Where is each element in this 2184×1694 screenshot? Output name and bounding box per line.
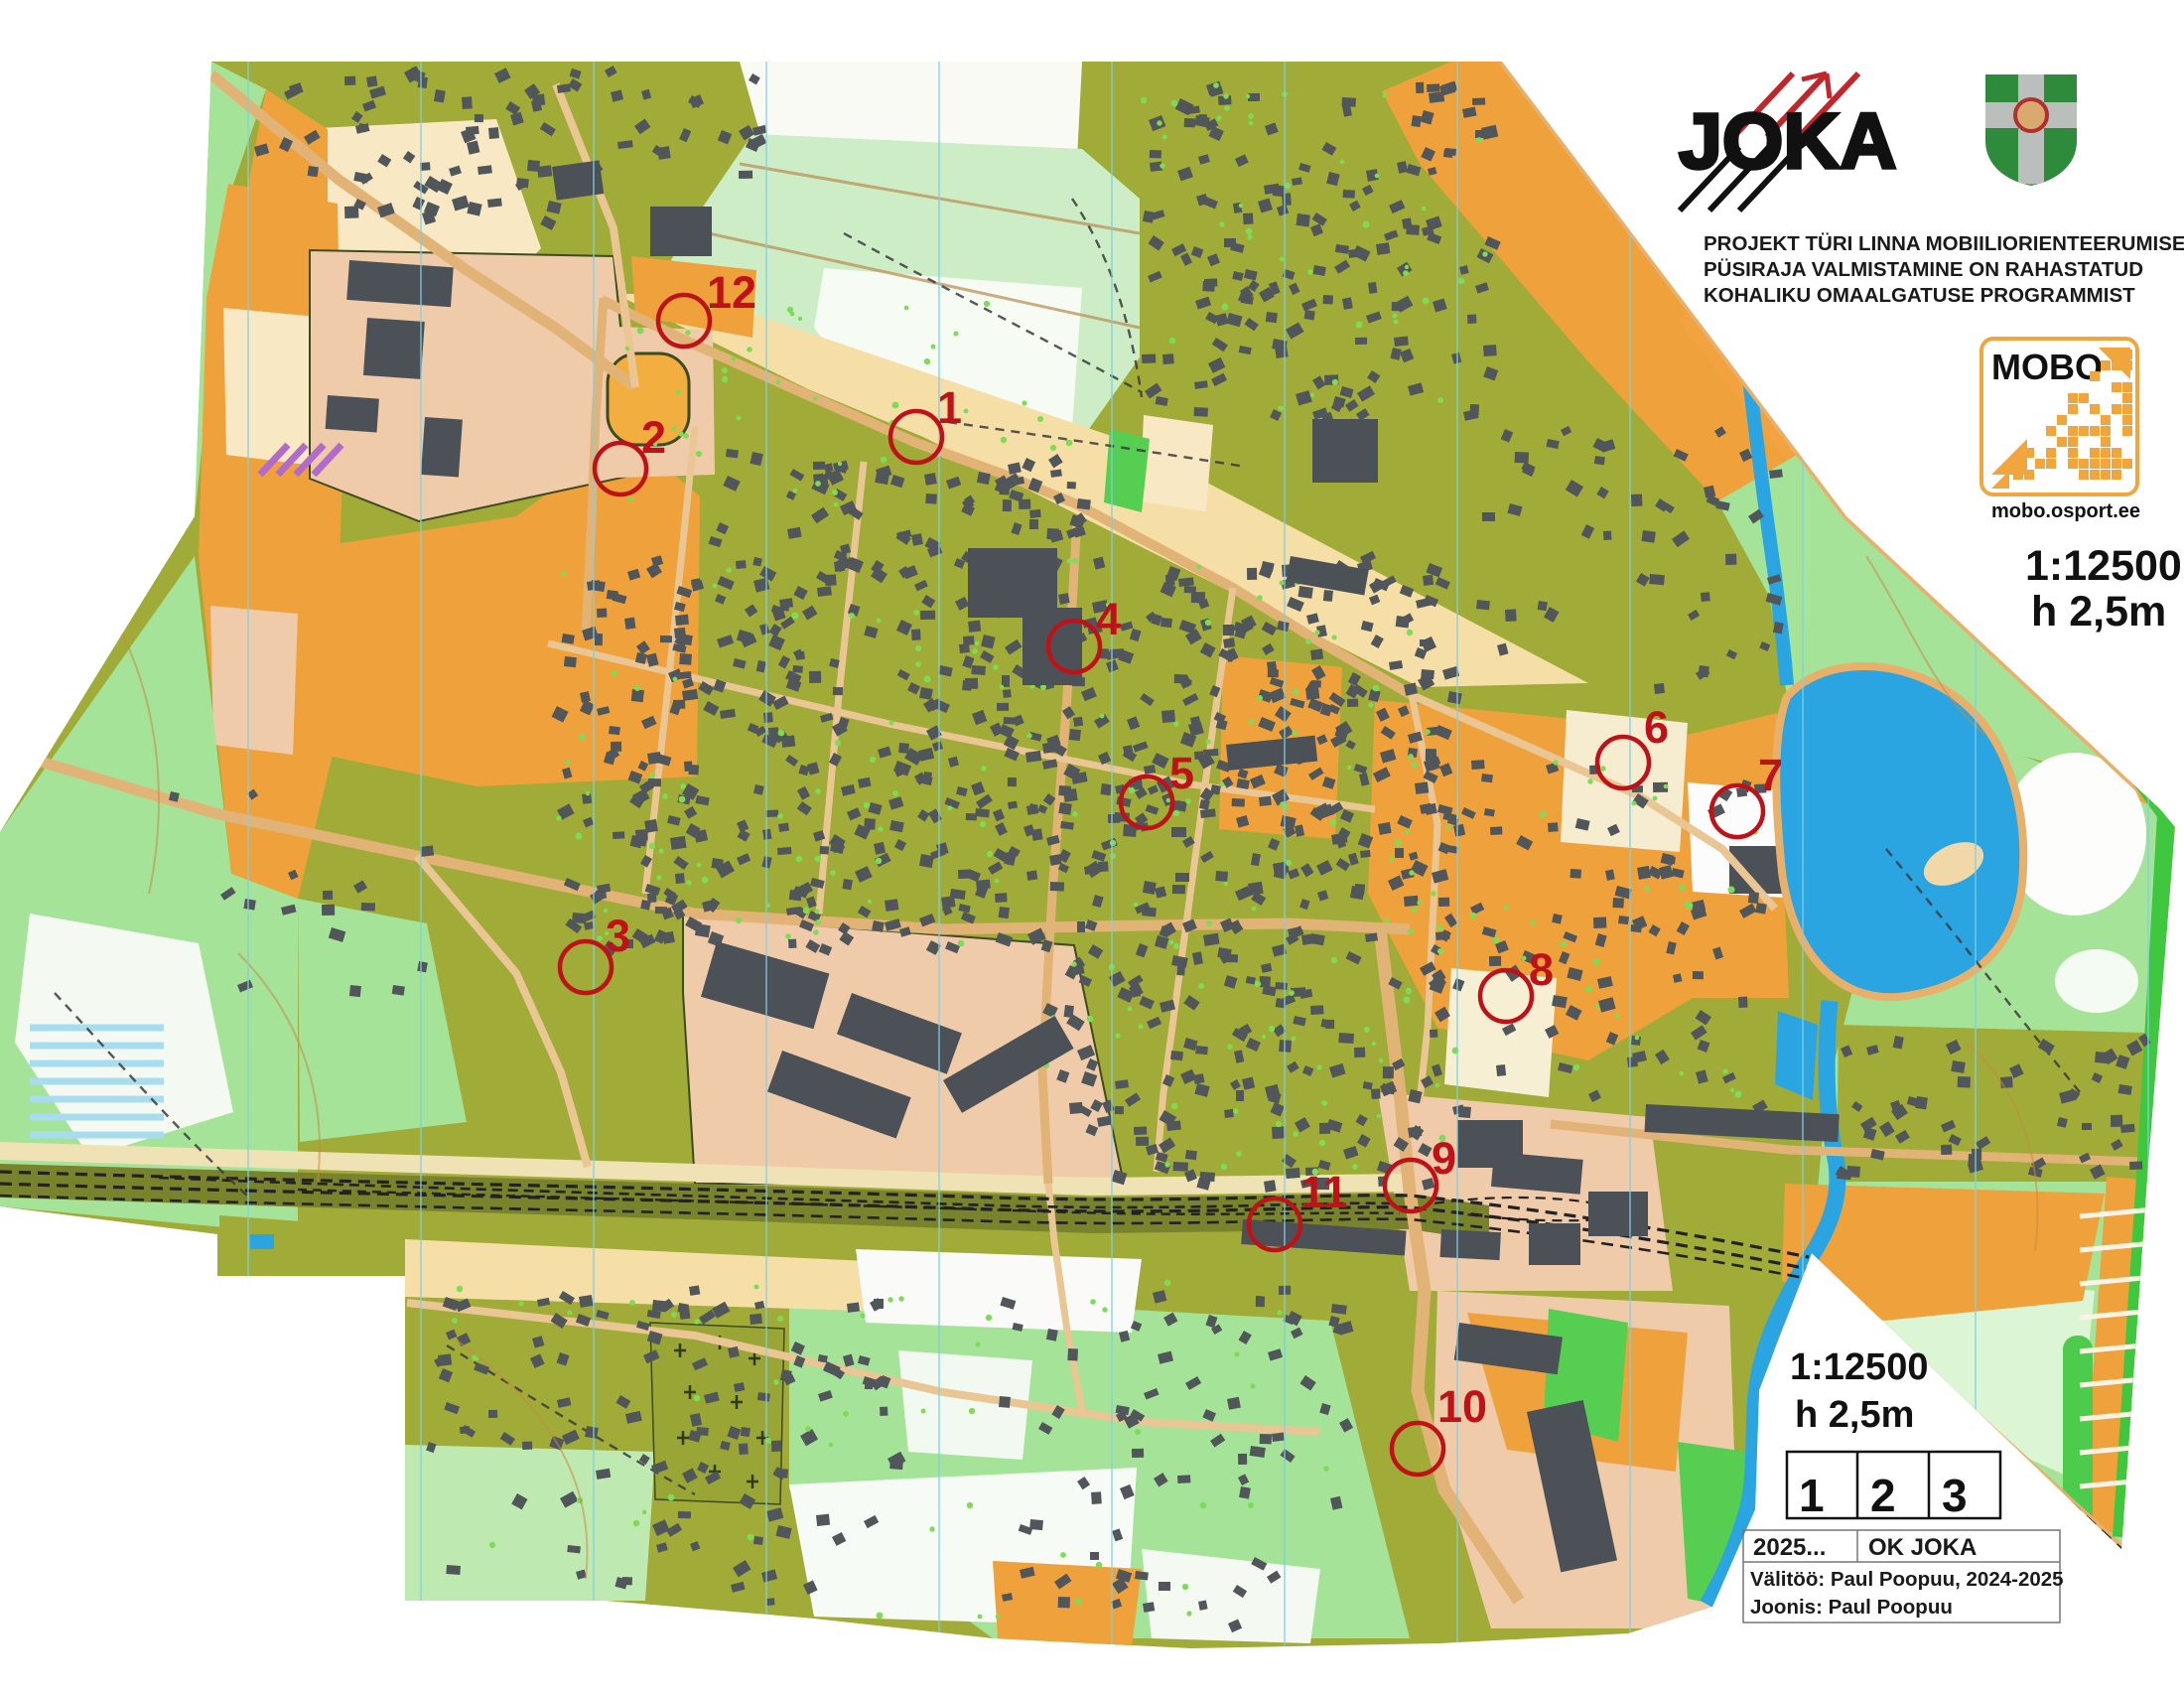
svg-text:8: 8 xyxy=(1529,944,1554,995)
svg-text:1: 1 xyxy=(937,382,962,433)
svg-text:JOKA: JOKA xyxy=(1679,96,1897,185)
svg-text:MOBO: MOBO xyxy=(1991,347,2103,387)
svg-text:PÜSIRAJA VALMISTAMINE ON RAHAS: PÜSIRAJA VALMISTAMINE ON RAHASTATUD xyxy=(1704,258,2143,281)
svg-text:KOHALIKU OMAALGATUSE PROGRAMMI: KOHALIKU OMAALGATUSE PROGRAMMIST xyxy=(1704,284,2135,307)
svg-text:h 2,5m: h 2,5m xyxy=(1795,1394,1914,1436)
svg-text:1:12500: 1:12500 xyxy=(2025,542,2182,590)
svg-text:OK JOKA: OK JOKA xyxy=(1868,1534,1977,1561)
svg-text:6: 6 xyxy=(1644,702,1669,753)
svg-text:1:12500: 1:12500 xyxy=(1790,1346,1928,1388)
svg-text:2: 2 xyxy=(1870,1470,1896,1521)
svg-text:5: 5 xyxy=(1169,748,1194,798)
svg-text:3: 3 xyxy=(1942,1470,1968,1521)
svg-text:Joonis: Paul Poopuu: Joonis: Paul Poopuu xyxy=(1750,1596,1953,1619)
svg-text:10: 10 xyxy=(1437,1381,1487,1432)
svg-text:Välitöö: Paul Poopuu, 2024-202: Välitöö: Paul Poopuu, 2024-2025 xyxy=(1750,1568,2064,1591)
svg-text:2: 2 xyxy=(641,412,666,463)
svg-text:h 2,5m: h 2,5m xyxy=(2031,588,2166,635)
svg-text:PROJEKT TÜRI LINNA MOBIILIORIE: PROJEKT TÜRI LINNA MOBIILIORIENTEERUMISE xyxy=(1704,232,2184,255)
svg-text:11: 11 xyxy=(1300,1167,1348,1217)
svg-text:12: 12 xyxy=(707,267,756,318)
svg-text:3: 3 xyxy=(606,911,630,961)
svg-text:1: 1 xyxy=(1799,1470,1825,1521)
svg-text:2025...: 2025... xyxy=(1753,1534,1826,1561)
svg-text:4: 4 xyxy=(1096,594,1121,644)
svg-text:9: 9 xyxy=(1432,1133,1456,1184)
svg-text:7: 7 xyxy=(1758,750,1783,800)
svg-text:mobo.osport.ee: mobo.osport.ee xyxy=(1991,500,2140,522)
